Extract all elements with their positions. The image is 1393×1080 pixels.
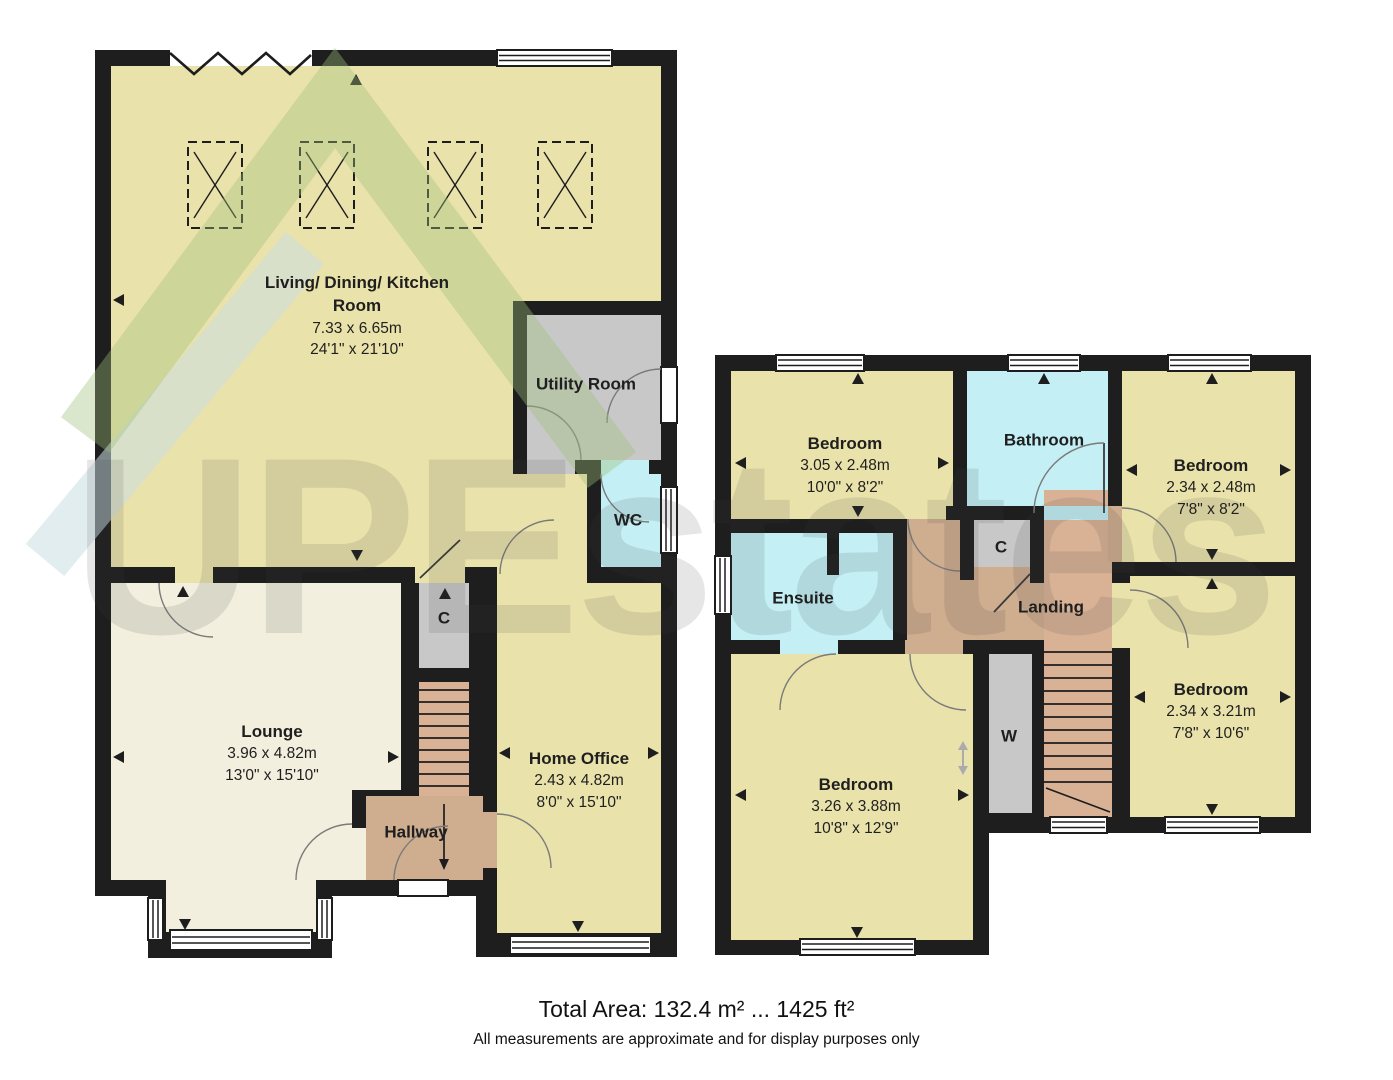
floorplan-page: UPEstates Living/ Dining/ Kitchen Room 7… [0, 0, 1393, 1080]
room-label-bedroom2: Bedroom 2.34 x 2.48m 7'8" x 8'2" [1166, 454, 1256, 520]
doorway-bed3 [905, 640, 963, 654]
room-label-hallway: Hallway [384, 820, 447, 843]
disclaimer-text: All measurements are approximate and for… [0, 1031, 1393, 1049]
utility-exterior-door-gap [661, 367, 677, 423]
room-label-lounge: Lounge 3.96 x 4.82m 13'0" x 15'10" [225, 720, 319, 786]
window-living-top [497, 50, 612, 66]
landing-fill-stairtop [1044, 490, 1112, 817]
doorway-bed2 [1108, 506, 1122, 562]
room-label-wc: WC [614, 508, 642, 531]
room-label-bedroom1: Bedroom 3.05 x 2.48m 10'0" x 8'2" [800, 432, 890, 498]
room-label-bedroom4: Bedroom 2.34 x 3.21m 7'8" x 10'6" [1166, 678, 1256, 744]
room-label-landing: Landing [1018, 595, 1084, 618]
doorway-lounge-hall [352, 828, 366, 880]
room-label-ensuite: Ensuite [772, 586, 833, 609]
doorway-bed4 [1112, 583, 1130, 648]
stairs-ground-fill [419, 682, 469, 796]
bay-window-right [317, 898, 332, 940]
bay-window-left [148, 898, 163, 940]
window-bedroom1-top [776, 355, 864, 371]
doorway-ensuite [780, 640, 838, 654]
doorway-lounge [175, 567, 213, 583]
window-stairs-bottom [1050, 817, 1107, 833]
doorway-bathroom [1044, 506, 1108, 520]
window-bedroom2-top [1168, 355, 1251, 371]
doorway-home-office [483, 812, 497, 868]
window-ensuite [715, 556, 731, 614]
room-lounge-fill-lower [111, 790, 352, 880]
room-label-utility: Utility Room [536, 372, 636, 395]
window-bedroom4-bottom [1165, 817, 1260, 833]
room-label-bathroom: Bathroom [1004, 428, 1084, 451]
window-bathroom-top [1008, 355, 1080, 371]
lounge-bay-fill [166, 880, 316, 932]
front-door-gap [398, 880, 448, 896]
room-label-wardrobe: W [1001, 724, 1017, 747]
room-label-home-office: Home Office 2.43 x 4.82m 8'0" x 15'10" [529, 747, 629, 813]
room-label-bedroom3: Bedroom 3.26 x 3.88m 10'8" x 12'9" [811, 773, 901, 839]
bay-window-bottom [170, 930, 312, 950]
room-label-closet-first: C [995, 535, 1007, 558]
doorway-lobby [497, 567, 587, 583]
window-bedroom3-bottom [800, 939, 915, 955]
window-wc [661, 487, 677, 553]
window-home-office [510, 936, 651, 954]
room-label-living: Living/ Dining/ Kitchen Room 7.33 x 6.65… [259, 271, 455, 361]
floorplan-drawing [0, 0, 1393, 1080]
total-area-text: Total Area: 132.4 m² ... 1425 ft² [0, 996, 1393, 1023]
doorway-utility [527, 460, 575, 474]
room-label-closet-ground: C [438, 606, 450, 629]
